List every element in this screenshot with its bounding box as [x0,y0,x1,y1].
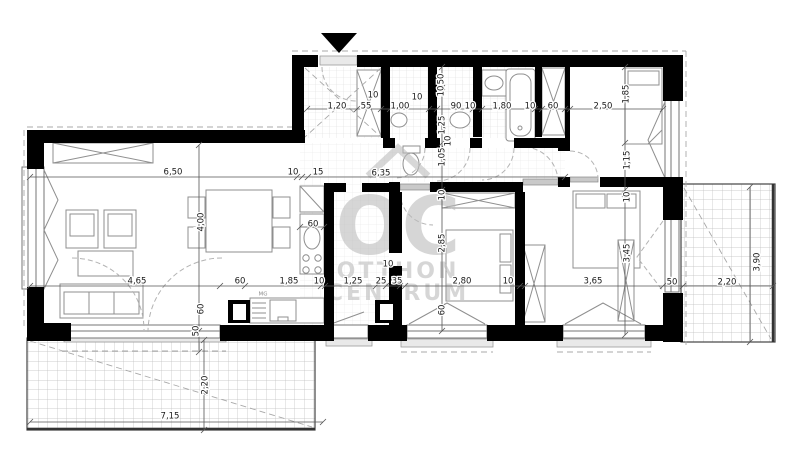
coffee-table [78,251,133,276]
dimension-label: 50 [192,326,202,337]
door-leaf [523,179,558,185]
door-swing [148,258,222,332]
dimension-label: 1,85 [622,85,632,104]
washbasin [391,113,407,127]
dimension-label: 60 [235,277,246,287]
dimension-label: 1,25 [438,116,448,135]
french-window [665,100,679,180]
dimension-label: 3,45 [623,244,633,263]
dimension-label: 55 [361,102,372,112]
dimension-label: 4,00 [197,213,207,232]
dimension-label: 10 [412,93,423,103]
dimension-label: 7,15 [161,412,180,422]
dimension-label: 1,25 [344,277,363,287]
chair [273,227,290,248]
dimension-label: 60 [438,305,448,316]
dimension-label: 90 [451,102,462,112]
dimension-label: 6,50 [164,168,183,178]
dimension-label: 15 [313,168,324,178]
living-room [53,143,153,318]
dimension-label: 50 [667,278,678,288]
dimension-label: 2,20 [718,278,737,288]
washing-machine-label: MG [258,292,267,298]
floor-plan-page: OC OTTHON CENTRUM [0,0,800,459]
dimension-label: 10 [623,192,633,203]
door-leaf [570,177,598,182]
dimension-label: 2,50 [594,102,613,112]
dimension-label: 25 [376,277,387,287]
shower-room [450,112,470,128]
dimension-label: 60 [308,220,319,230]
dimension-label: 60 [548,102,559,112]
dimension-label: 10 [314,277,325,287]
washing-machine [270,300,296,321]
dimension-label: 10 [438,190,448,201]
dimension-label: 1,00 [391,102,410,112]
washbasin [450,112,470,128]
dimension-label: 10 [383,260,394,270]
door-swing [570,151,598,179]
dimension-label: 1,80 [493,102,512,112]
entrance-door [320,56,357,65]
dimension-label: 2,80 [453,277,472,287]
window [22,167,44,289]
dimension-label: 60 [197,304,207,315]
dimension-label: 10 [288,168,299,178]
dining-table [206,190,272,252]
dimension-label: 10 [525,102,536,112]
dimension-label: 4,65 [128,277,147,287]
dimension-label: 6,35 [372,169,391,179]
vanity [482,70,506,96]
chair [273,197,290,218]
dimension-label: 50 [437,74,447,85]
dimension-label: 10 [368,91,379,101]
dimension-label: 10 [503,277,514,287]
dimension-label: 2,20 [201,376,211,395]
dimension-label: 1,85 [280,277,299,287]
dimension-label: 1,20 [328,102,347,112]
dimension-label: 3,65 [584,277,603,287]
dimension-label: 10 [437,86,447,97]
armchair [104,210,136,248]
dimension-label: 1,05 [438,148,448,167]
dimension-label: 10 [444,136,454,147]
bed [625,68,662,144]
dimension-label: 2,85 [438,234,448,253]
floor-plan-drawing: OC OTTHON CENTRUM [0,0,800,459]
entrance-arrow-icon [321,33,357,53]
dimension-label: 35 [392,277,403,287]
sofa [60,284,143,318]
dimension-label: 3,90 [753,253,763,272]
dimension-label: 10 [465,102,476,112]
dimension-label: 1,15 [623,151,633,170]
window [330,325,368,338]
armchair [66,210,98,248]
